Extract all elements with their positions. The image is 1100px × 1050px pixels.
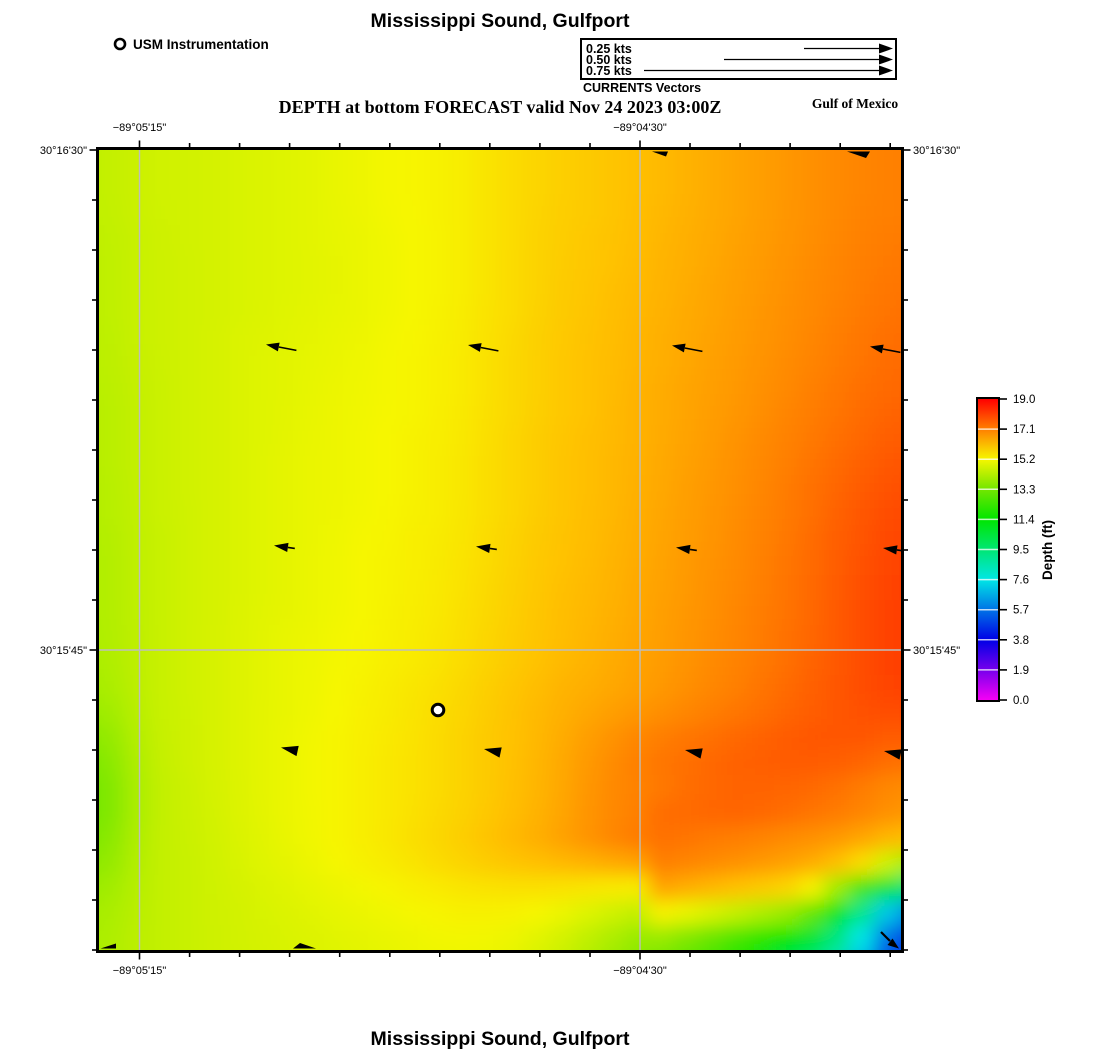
svg-text:30°15'45": 30°15'45" <box>40 645 87 657</box>
svg-text:30°16'30": 30°16'30" <box>913 145 960 157</box>
svg-text:Depth (ft): Depth (ft) <box>1040 520 1055 580</box>
svg-text:19.0: 19.0 <box>1013 394 1035 406</box>
svg-text:−89°04'30": −89°04'30" <box>613 122 667 134</box>
svg-text:11.4: 11.4 <box>1013 514 1035 526</box>
svg-text:5.7: 5.7 <box>1013 605 1029 617</box>
svg-text:9.5: 9.5 <box>1013 545 1029 557</box>
svg-text:30°15'45": 30°15'45" <box>913 645 960 657</box>
svg-text:−89°05'15": −89°05'15" <box>113 965 167 977</box>
svg-text:1.9: 1.9 <box>1013 665 1029 677</box>
svg-text:Gulf of Mexico: Gulf of Mexico <box>812 96 898 111</box>
svg-text:USM Instrumentation: USM Instrumentation <box>133 37 269 52</box>
svg-text:CURRENTS Vectors: CURRENTS Vectors <box>583 81 701 95</box>
svg-text:13.3: 13.3 <box>1013 484 1035 496</box>
svg-text:−89°04'30": −89°04'30" <box>613 965 667 977</box>
svg-text:17.1: 17.1 <box>1013 424 1035 436</box>
svg-text:7.6: 7.6 <box>1013 575 1029 587</box>
svg-text:DEPTH at bottom FORECAST valid: DEPTH at bottom FORECAST valid Nov 24 20… <box>279 97 722 117</box>
svg-text:15.2: 15.2 <box>1013 454 1035 466</box>
svg-text:30°16'30": 30°16'30" <box>40 145 87 157</box>
svg-text:3.8: 3.8 <box>1013 635 1029 647</box>
svg-text:0.75 kts: 0.75 kts <box>586 64 632 78</box>
svg-text:−89°05'15": −89°05'15" <box>113 122 167 134</box>
svg-text:Mississippi Sound, Gulfport: Mississippi Sound, Gulfport <box>371 10 630 32</box>
svg-text:Mississippi Sound, Gulfport: Mississippi Sound, Gulfport <box>371 1028 630 1050</box>
svg-text:0.0: 0.0 <box>1013 695 1029 707</box>
